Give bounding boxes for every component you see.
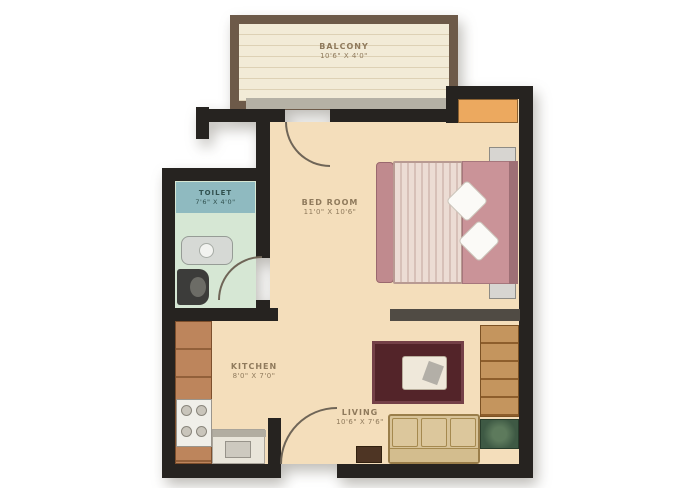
wall-segment xyxy=(256,109,285,122)
balcony-label-text: BALCONY xyxy=(319,42,369,52)
living-label-text: LIVING xyxy=(342,408,379,418)
wall-segment xyxy=(196,107,209,139)
bedroom-label: BED ROOM 11'0" X 10'6" xyxy=(268,192,392,222)
stove-burner xyxy=(196,426,207,437)
kitchen-label: KITCHEN 8'0" X 7'0" xyxy=(198,356,310,386)
wall-segment xyxy=(162,308,278,321)
wardrobe xyxy=(458,99,518,123)
toilet-label: TOILET 7'6" X 4'0" xyxy=(176,182,255,213)
bed-footboard xyxy=(376,162,394,283)
shelf-cabinet xyxy=(480,325,519,417)
sofa-cushion xyxy=(421,418,447,447)
sofa-cushion xyxy=(450,418,476,447)
stove-burner xyxy=(181,426,192,437)
wall-segment xyxy=(519,86,533,478)
balcony-label: BALCONY 10'6" X 4'0" xyxy=(254,34,434,68)
sink-backsplash xyxy=(213,430,266,437)
living-dims-text: 10'6" X 7'6" xyxy=(336,418,384,427)
coffee-table-decor xyxy=(422,361,444,385)
stove-burner xyxy=(181,405,192,416)
washbasin xyxy=(181,236,233,265)
sink-unit xyxy=(212,429,265,464)
wall-segment xyxy=(337,464,533,478)
side-table xyxy=(356,446,382,463)
bed-headboard xyxy=(509,161,518,284)
kitchen-label-text: KITCHEN xyxy=(231,362,277,372)
toilet-wc xyxy=(177,269,209,305)
wall-segment xyxy=(162,168,269,181)
coffee-table xyxy=(402,356,447,390)
kitchen-dims-text: 8'0" X 7'0" xyxy=(233,372,276,381)
floorplan: BALCONY 10'6" X 4'0" TOILET xyxy=(0,0,700,488)
window-sill xyxy=(246,98,446,109)
wall-segment xyxy=(446,86,458,123)
washbasin-bowl xyxy=(199,243,214,258)
floorplan-canvas: BALCONY 10'6" X 4'0" TOILET xyxy=(0,0,700,488)
living-label: LIVING 10'6" X 7'6" xyxy=(312,402,408,432)
toilet-dims-text: 7'6" X 4'0" xyxy=(195,198,235,206)
bedroom-label-text: BED ROOM xyxy=(302,198,359,208)
bedroom-dims-text: 11'0" X 10'6" xyxy=(304,208,357,217)
wall-segment xyxy=(330,109,458,122)
sink-basin xyxy=(225,441,251,458)
wall-segment xyxy=(162,168,175,478)
stove xyxy=(176,399,212,447)
toilet-wc-seat xyxy=(190,277,206,297)
bed-head-section xyxy=(462,161,512,284)
rug xyxy=(372,341,464,404)
wall-segment xyxy=(268,418,281,466)
sofa-back xyxy=(390,448,478,462)
wall-segment xyxy=(162,464,281,478)
balcony-dims-text: 10'6" X 4'0" xyxy=(320,52,368,61)
bed-mattress xyxy=(393,161,463,284)
plant-unit xyxy=(480,419,519,449)
stove-burner xyxy=(196,405,207,416)
partition-wall xyxy=(390,309,520,321)
toilet-label-text: TOILET xyxy=(199,189,232,198)
